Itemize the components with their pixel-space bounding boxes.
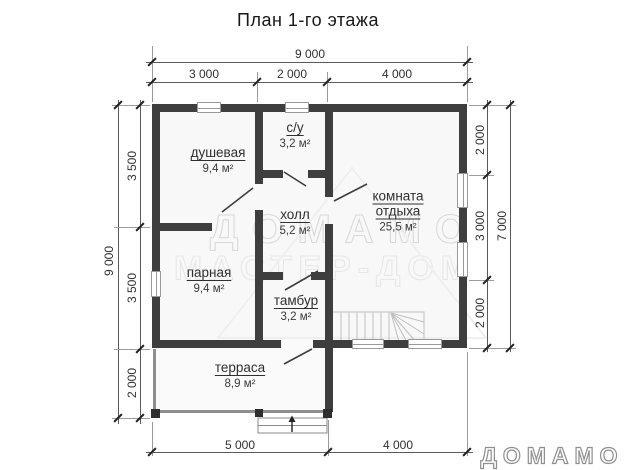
room-area: 8,9 м² [215,378,265,390]
dimension-line [146,62,473,63]
room-name: комната отдыха [365,189,431,219]
dimension-line [487,100,488,352]
wall-segment [325,348,333,412]
window [408,339,442,349]
dim-right-seg-3: 2 000 [473,298,487,328]
door-swings [222,172,367,364]
dim-left-seg-3: 2 000 [125,368,139,398]
brand-logo: ДОМАМО [480,443,623,470]
window [457,242,468,277]
wall-segment [263,272,283,280]
dimension-line [146,452,473,453]
room-label-steam: парная 9,4 м² [187,265,232,295]
extension-line [469,175,494,176]
room-area: 3,2 м² [280,138,311,150]
door-terrace [284,349,312,364]
room-area: 25,5 м² [365,222,431,234]
terrace-post [255,409,263,417]
terrace-post [323,409,332,418]
dim-top-seg-2: 2 000 [277,67,307,81]
dim-top-seg-3: 4 000 [382,67,412,81]
extension-line [467,352,468,456]
dim-left-seg-2: 3 500 [125,273,139,303]
wall-segment [263,170,283,178]
room-name: с/у [280,120,311,135]
plan-linework [0,0,627,470]
room-name: холл [280,207,311,222]
room-name: душевая [191,145,246,160]
room-name: парная [187,265,232,280]
extension-line [152,46,153,102]
room-area: 3,2 м² [274,311,318,323]
dim-top-seg-1: 3 000 [189,67,219,81]
dim-left-seg-1: 3 500 [125,151,139,181]
floor-plan-canvas: План 1-го этажа ДОМАМО МАСТЕР-ДОМ д [0,0,627,470]
dim-bottom-seg-2: 4 000 [383,438,413,452]
wall-segment [325,112,333,197]
terrace-wall [153,349,156,411]
dimension-line [146,82,473,83]
room-label-wc: с/у 3,2 м² [280,120,311,150]
dim-right-seg-2: 3 000 [473,211,487,241]
terrace-wall [153,410,328,413]
room-name: терраса [215,360,265,375]
room-label-shower: душевая 9,4 м² [191,145,246,175]
extension-line [467,46,468,102]
extension-line [114,227,150,228]
wall-segment [255,210,263,340]
wall-segment [459,104,467,348]
extension-line [327,72,328,102]
dim-left-overall: 9 000 [102,246,116,276]
window [457,173,468,208]
window [151,271,161,297]
dimension-line [510,100,511,352]
wall-segment [325,224,333,340]
wall-segment [160,223,212,231]
window [352,339,384,349]
room-name: тамбур [274,293,318,308]
extension-line [114,349,150,350]
wall-segment [308,170,325,178]
door-wc [284,172,306,186]
wall-segment [311,272,325,280]
room-label-terrace: терраса 8,9 м² [215,360,265,390]
dim-bottom-seg-1: 5 000 [225,438,255,452]
dim-right-overall: 7 000 [495,211,509,241]
extension-line [257,72,258,102]
dim-top-overall: 9 000 [295,47,325,61]
dimension-line [140,100,141,424]
wall-segment [152,104,160,348]
wall-segment [255,112,263,184]
window [197,102,221,113]
room-area: 9,4 м² [191,163,246,175]
window [285,102,309,113]
door-shower [222,188,253,212]
extension-line [469,280,494,281]
room-label-tambour: тамбур 3,2 м² [274,293,318,323]
door-lounge [334,184,367,201]
room-label-lounge: комната отдыха 25,5 м² [365,189,431,234]
dim-right-seg-1: 2 000 [473,125,487,155]
dimension-line [118,100,119,424]
room-area: 5,2 м² [280,225,311,237]
room-label-hall: холл 5,2 м² [280,207,311,237]
terrace-post [151,409,160,418]
door-opening [281,340,313,348]
room-area: 9,4 м² [187,283,232,295]
entrance-steps [258,416,327,434]
